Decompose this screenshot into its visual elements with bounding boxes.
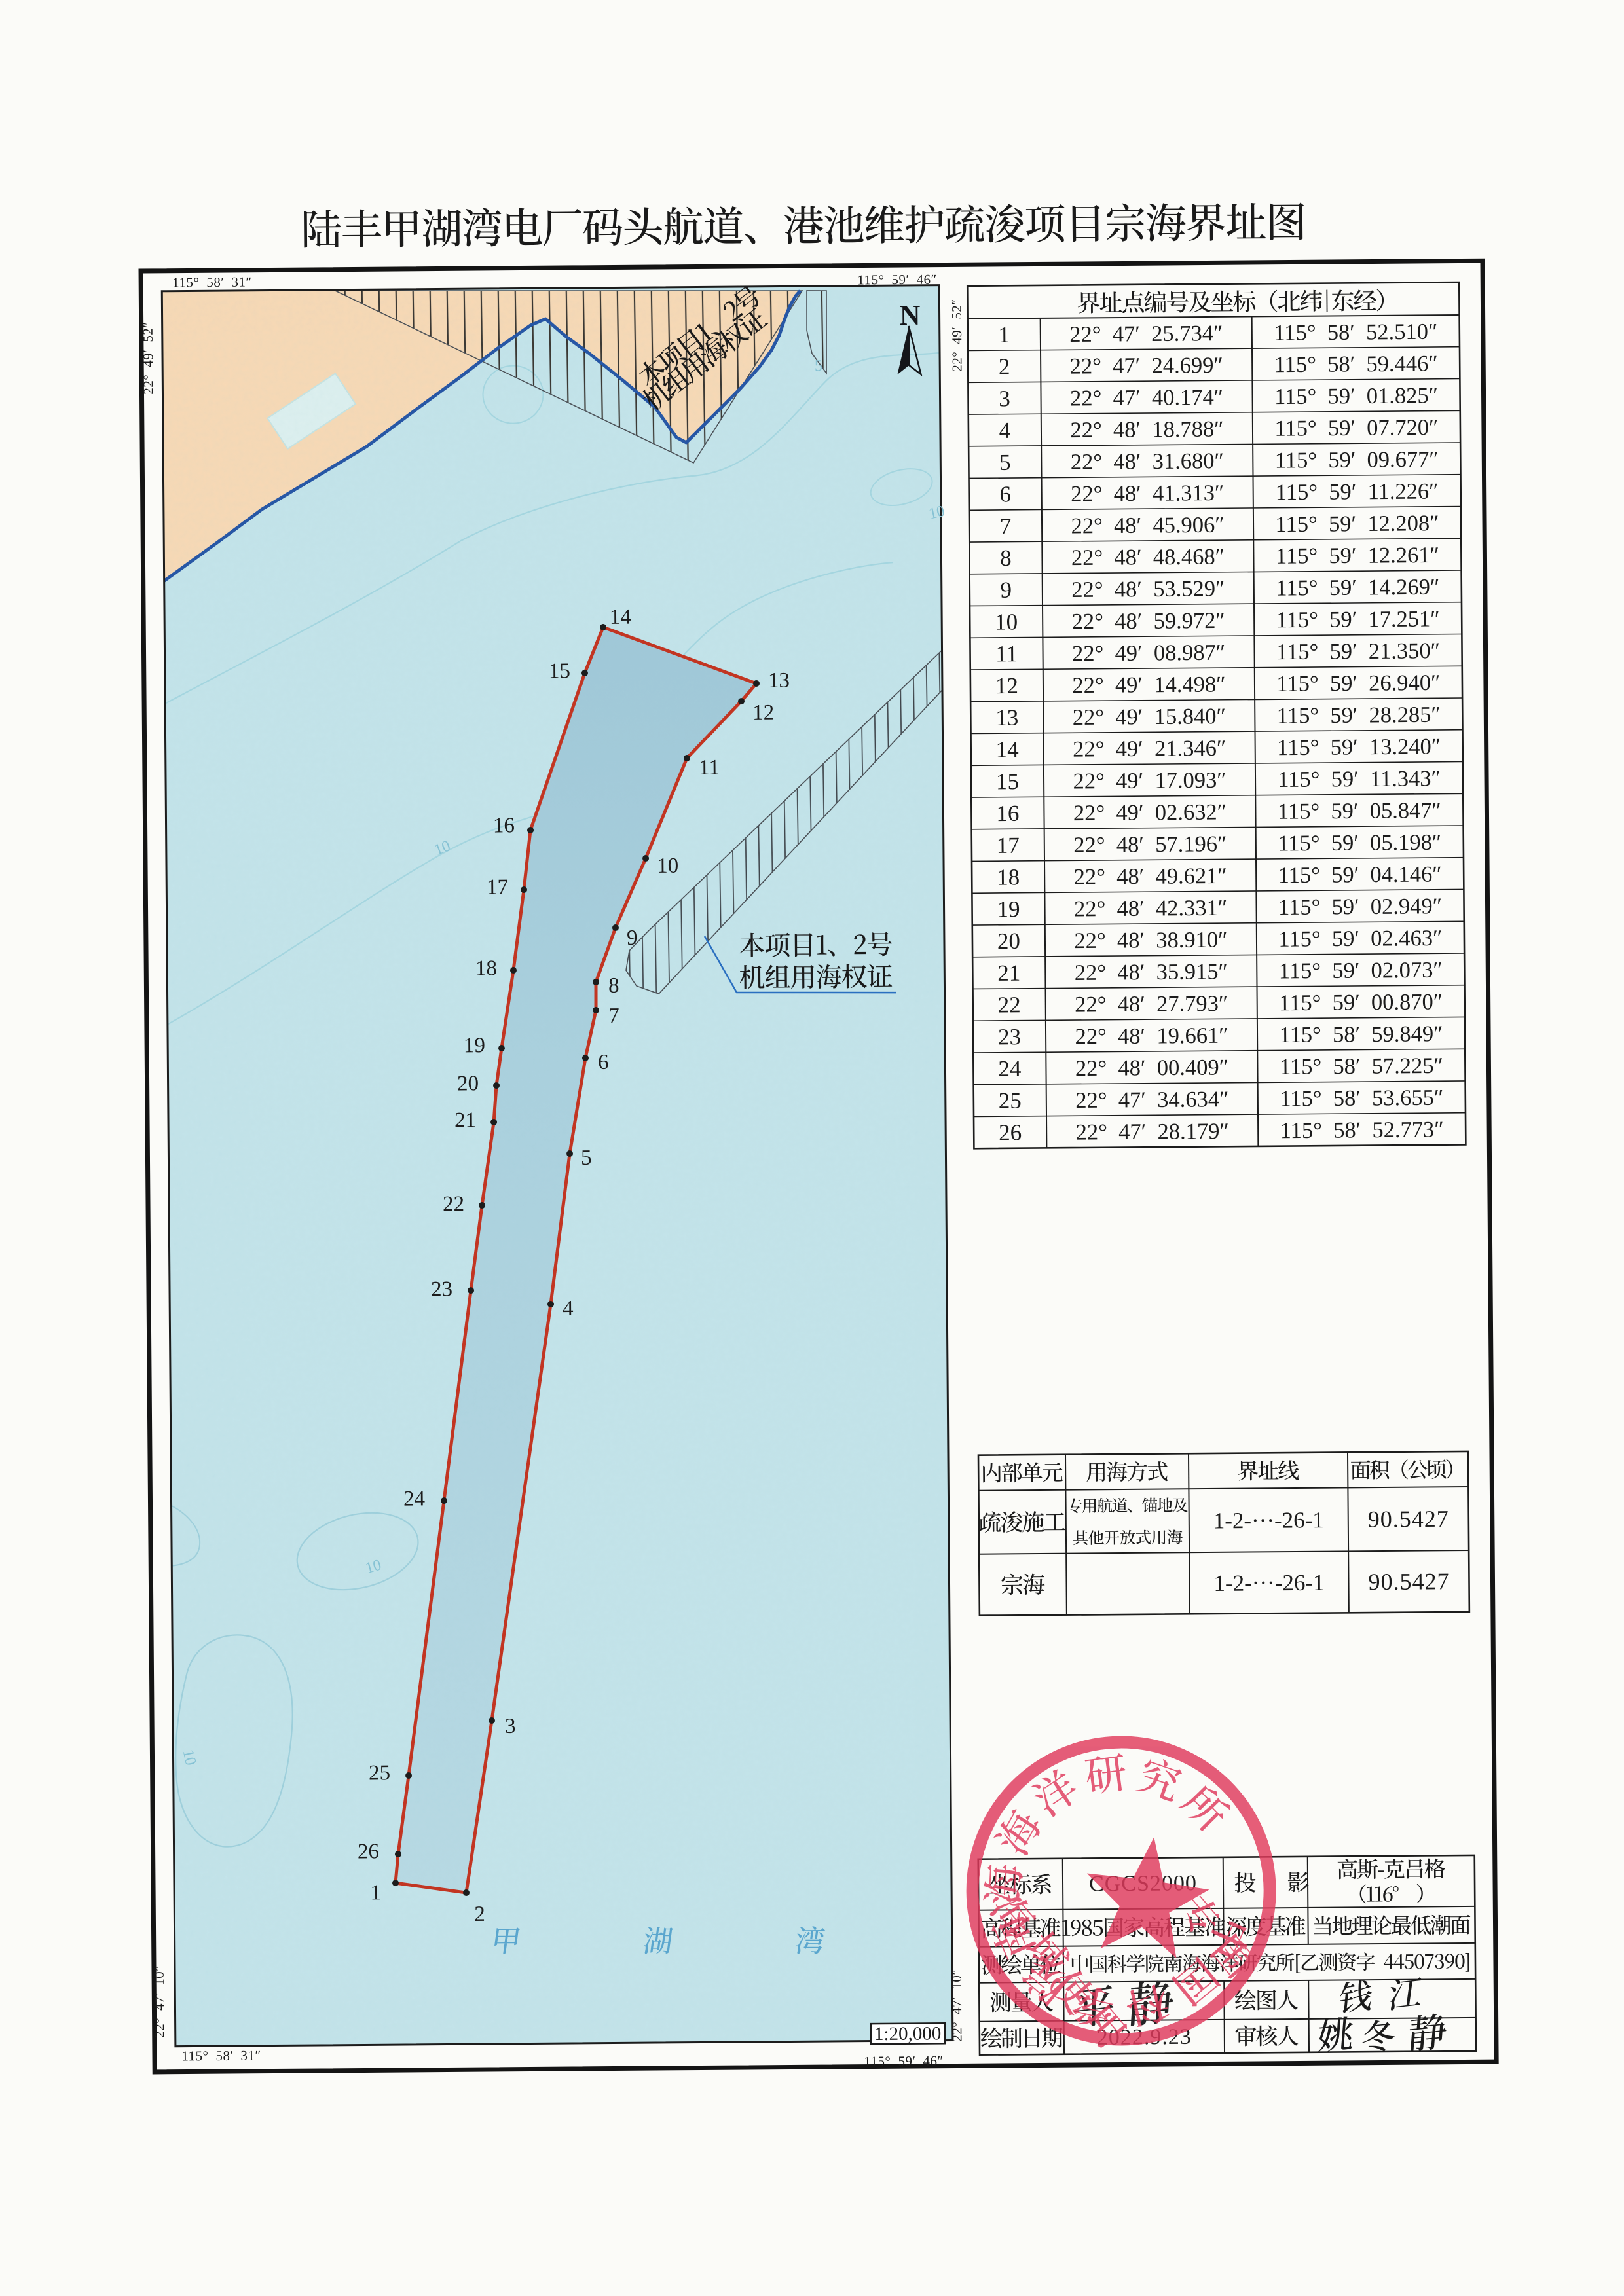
svg-text:22° 48′ 35.915″: 22° 48′ 35.915″ xyxy=(1075,959,1228,985)
svg-text:14: 14 xyxy=(610,606,631,629)
svg-text:115° 59′ 02.949″: 115° 59′ 02.949″ xyxy=(1278,894,1442,920)
svg-text:21: 21 xyxy=(997,960,1020,986)
svg-text:22° 47′ 34.634″: 22° 47′ 34.634″ xyxy=(1075,1087,1228,1113)
svg-text:10: 10 xyxy=(995,609,1018,634)
svg-text:25: 25 xyxy=(999,1088,1022,1114)
svg-text:115° 58′ 59.446″: 115° 58′ 59.446″ xyxy=(1274,351,1438,377)
svg-text:22° 48′ 42.331″: 22° 48′ 42.331″ xyxy=(1074,896,1227,922)
svg-text:115° 59′ 14.269″: 115° 59′ 14.269″ xyxy=(1276,575,1439,601)
svg-text:22° 48′ 19.661″: 22° 48′ 19.661″ xyxy=(1075,1023,1228,1049)
svg-text:115° 59′ 11.343″: 115° 59′ 11.343″ xyxy=(1278,766,1441,792)
svg-text:18: 18 xyxy=(997,864,1020,890)
svg-text:1-2-···-26-1: 1-2-···-26-1 xyxy=(1213,1570,1324,1596)
svg-text:8: 8 xyxy=(1000,545,1012,571)
svg-text:16: 16 xyxy=(493,814,515,837)
svg-text:22° 47′ 10″: 22° 47′ 10″ xyxy=(151,1965,168,2037)
svg-text:4: 4 xyxy=(999,418,1011,443)
svg-text:22° 48′ 18.788″: 22° 48′ 18.788″ xyxy=(1070,416,1223,443)
svg-text:2: 2 xyxy=(999,354,1010,379)
svg-text:115° 59′ 11.226″: 115° 59′ 11.226″ xyxy=(1276,479,1439,505)
svg-text:22° 48′ 41.313″: 22° 48′ 41.313″ xyxy=(1071,481,1224,507)
svg-text:22° 48′ 27.793″: 22° 48′ 27.793″ xyxy=(1075,991,1228,1017)
svg-text:26: 26 xyxy=(358,1840,379,1863)
svg-text:115° 59′ 02.073″: 115° 59′ 02.073″ xyxy=(1279,958,1443,984)
svg-text:22° 47′ 40.174″: 22° 47′ 40.174″ xyxy=(1070,385,1223,411)
svg-text:115° 58′ 52.510″: 115° 58′ 52.510″ xyxy=(1274,319,1437,346)
svg-text:19: 19 xyxy=(464,1034,485,1057)
svg-text:13: 13 xyxy=(768,669,790,693)
svg-text:22° 48′ 57.196″: 22° 48′ 57.196″ xyxy=(1073,831,1227,858)
svg-text:115° 59′ 12.208″: 115° 59′ 12.208″ xyxy=(1275,511,1439,537)
svg-text:4: 4 xyxy=(563,1297,574,1321)
svg-text:11: 11 xyxy=(995,641,1018,666)
svg-text:115° 59′ 00.870″: 115° 59′ 00.870″ xyxy=(1279,989,1443,1015)
svg-text:22° 49′ 14.498″: 22° 49′ 14.498″ xyxy=(1072,672,1225,698)
svg-text:11: 11 xyxy=(699,756,720,780)
svg-text:3: 3 xyxy=(999,386,1010,411)
svg-text:22° 48′ 45.906″: 22° 48′ 45.906″ xyxy=(1071,513,1224,539)
svg-text:17: 17 xyxy=(487,875,508,899)
svg-text:22° 48′ 59.972″: 22° 48′ 59.972″ xyxy=(1072,608,1225,634)
svg-text:115° 58′ 59.849″: 115° 58′ 59.849″ xyxy=(1279,1021,1443,1048)
svg-text:1:20,000: 1:20,000 xyxy=(874,2023,942,2045)
svg-text:1: 1 xyxy=(370,1881,381,1904)
svg-text:22: 22 xyxy=(998,992,1021,1017)
svg-text:22° 49′ 17.093″: 22° 49′ 17.093″ xyxy=(1073,768,1226,794)
svg-text:5: 5 xyxy=(815,357,822,374)
svg-text:115° 59′ 26.940″: 115° 59′ 26.940″ xyxy=(1276,670,1440,697)
svg-text:22° 49′ 15.840″: 22° 49′ 15.840″ xyxy=(1073,704,1226,730)
svg-text:15: 15 xyxy=(996,769,1019,794)
svg-text:1: 1 xyxy=(998,322,1010,348)
svg-text:1-2-···-26-1: 1-2-···-26-1 xyxy=(1213,1507,1324,1533)
svg-text:N: N xyxy=(900,299,921,331)
svg-text:3: 3 xyxy=(505,1715,516,1738)
svg-text:24: 24 xyxy=(998,1056,1021,1082)
svg-text:23: 23 xyxy=(431,1277,452,1301)
svg-text:10: 10 xyxy=(657,854,678,878)
svg-text:22° 49′ 08.987″: 22° 49′ 08.987″ xyxy=(1072,640,1225,666)
svg-text:26: 26 xyxy=(999,1120,1022,1145)
svg-text:22° 48′ 53.529″: 22° 48′ 53.529″ xyxy=(1071,576,1225,602)
svg-text:7: 7 xyxy=(608,1004,619,1028)
svg-text:9: 9 xyxy=(1000,577,1012,603)
svg-text:7: 7 xyxy=(1000,513,1012,539)
svg-text:115° 58′ 52.773″: 115° 58′ 52.773″ xyxy=(1280,1117,1444,1143)
svg-text:115° 59′ 07.720″: 115° 59′ 07.720″ xyxy=(1274,415,1438,441)
svg-text:115° 58′ 57.225″: 115° 58′ 57.225″ xyxy=(1280,1053,1443,1080)
svg-text:22° 48′ 49.621″: 22° 48′ 49.621″ xyxy=(1074,864,1227,890)
svg-text:12: 12 xyxy=(752,701,774,725)
svg-text:6: 6 xyxy=(598,1051,609,1074)
svg-text:20: 20 xyxy=(457,1072,479,1095)
svg-text:115° 59′ 05.847″: 115° 59′ 05.847″ xyxy=(1278,798,1441,824)
svg-text:115° 59′ 17.251″: 115° 59′ 17.251″ xyxy=(1276,606,1440,632)
svg-text:12: 12 xyxy=(995,673,1018,699)
svg-text:22° 48′ 38.910″: 22° 48′ 38.910″ xyxy=(1074,927,1227,953)
svg-text:90.5427: 90.5427 xyxy=(1368,1568,1449,1595)
svg-text:115° 59′ 12.261″: 115° 59′ 12.261″ xyxy=(1276,543,1439,569)
svg-text:22: 22 xyxy=(443,1192,464,1216)
svg-text:22° 48′ 48.468″: 22° 48′ 48.468″ xyxy=(1071,544,1225,570)
svg-text:19: 19 xyxy=(997,896,1020,922)
svg-text:20: 20 xyxy=(997,928,1020,954)
svg-text:22° 49′ 21.346″: 22° 49′ 21.346″ xyxy=(1073,736,1226,762)
svg-text:2: 2 xyxy=(474,1903,485,1926)
svg-text:24: 24 xyxy=(403,1487,425,1510)
svg-text:21: 21 xyxy=(454,1108,476,1132)
svg-text:22° 49′ 52″: 22° 49′ 52″ xyxy=(949,299,965,371)
svg-text:115° 59′ 02.463″: 115° 59′ 02.463″ xyxy=(1278,926,1442,952)
svg-text:22° 47′ 28.179″: 22° 47′ 28.179″ xyxy=(1076,1119,1229,1145)
svg-text:22° 47′ 25.734″: 22° 47′ 25.734″ xyxy=(1069,321,1223,347)
svg-text:115° 58′ 53.655″: 115° 58′ 53.655″ xyxy=(1280,1085,1443,1112)
svg-text:22° 49′ 52″: 22° 49′ 52″ xyxy=(140,321,157,394)
svg-text:8: 8 xyxy=(608,974,619,998)
svg-text:23: 23 xyxy=(998,1024,1021,1049)
svg-text:115° 59′ 13.240″: 115° 59′ 13.240″ xyxy=(1277,734,1441,760)
svg-text:9: 9 xyxy=(627,926,638,950)
svg-text:115° 58′ 31″: 115° 58′ 31″ xyxy=(181,2048,261,2064)
svg-text:115° 59′ 28.285″: 115° 59′ 28.285″ xyxy=(1277,702,1441,729)
svg-text:25: 25 xyxy=(369,1761,390,1785)
svg-text:5: 5 xyxy=(581,1146,592,1170)
svg-text:90.5427: 90.5427 xyxy=(1368,1506,1449,1533)
svg-text:16: 16 xyxy=(996,801,1019,826)
svg-text:115° 58′ 31″: 115° 58′ 31″ xyxy=(172,274,252,291)
svg-text:14: 14 xyxy=(996,737,1019,762)
svg-text:18: 18 xyxy=(475,957,497,980)
svg-text:5: 5 xyxy=(999,450,1011,475)
svg-text:15: 15 xyxy=(549,659,570,683)
svg-text:6: 6 xyxy=(999,481,1011,507)
svg-text:22° 48′ 31.680″: 22° 48′ 31.680″ xyxy=(1071,448,1224,475)
svg-text:22° 47′ 24.699″: 22° 47′ 24.699″ xyxy=(1070,353,1223,379)
svg-text:115° 59′ 21.350″: 115° 59′ 21.350″ xyxy=(1276,638,1440,665)
svg-text:115° 59′ 04.146″: 115° 59′ 04.146″ xyxy=(1278,862,1442,888)
svg-text:115° 59′ 09.677″: 115° 59′ 09.677″ xyxy=(1275,447,1439,473)
svg-text:115° 59′ 05.198″: 115° 59′ 05.198″ xyxy=(1278,830,1441,856)
svg-text:22° 48′ 00.409″: 22° 48′ 00.409″ xyxy=(1075,1055,1228,1081)
svg-text:115° 59′ 01.825″: 115° 59′ 01.825″ xyxy=(1274,383,1438,409)
svg-text:13: 13 xyxy=(995,705,1018,731)
svg-text:115° 59′ 46″: 115° 59′ 46″ xyxy=(864,2053,944,2069)
svg-text:17: 17 xyxy=(997,833,1020,858)
svg-text:22° 49′ 02.632″: 22° 49′ 02.632″ xyxy=(1073,799,1227,826)
